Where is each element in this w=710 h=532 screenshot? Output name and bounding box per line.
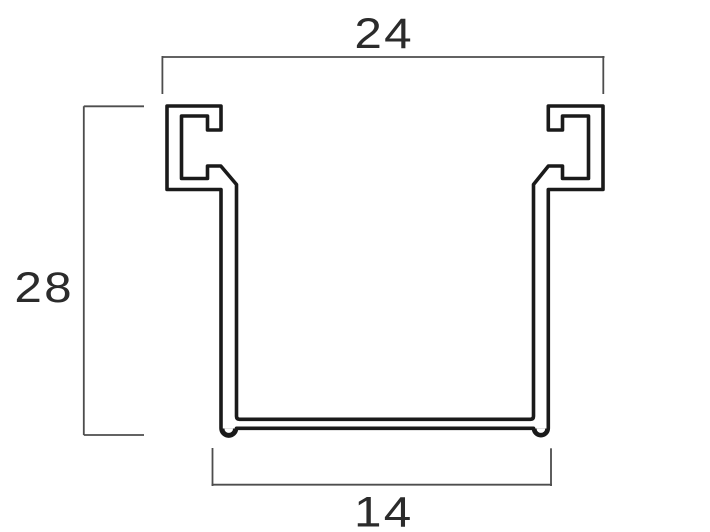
svg-text:24: 24 bbox=[354, 9, 414, 57]
svg-text:14: 14 bbox=[354, 488, 414, 532]
svg-text:28: 28 bbox=[14, 263, 74, 311]
